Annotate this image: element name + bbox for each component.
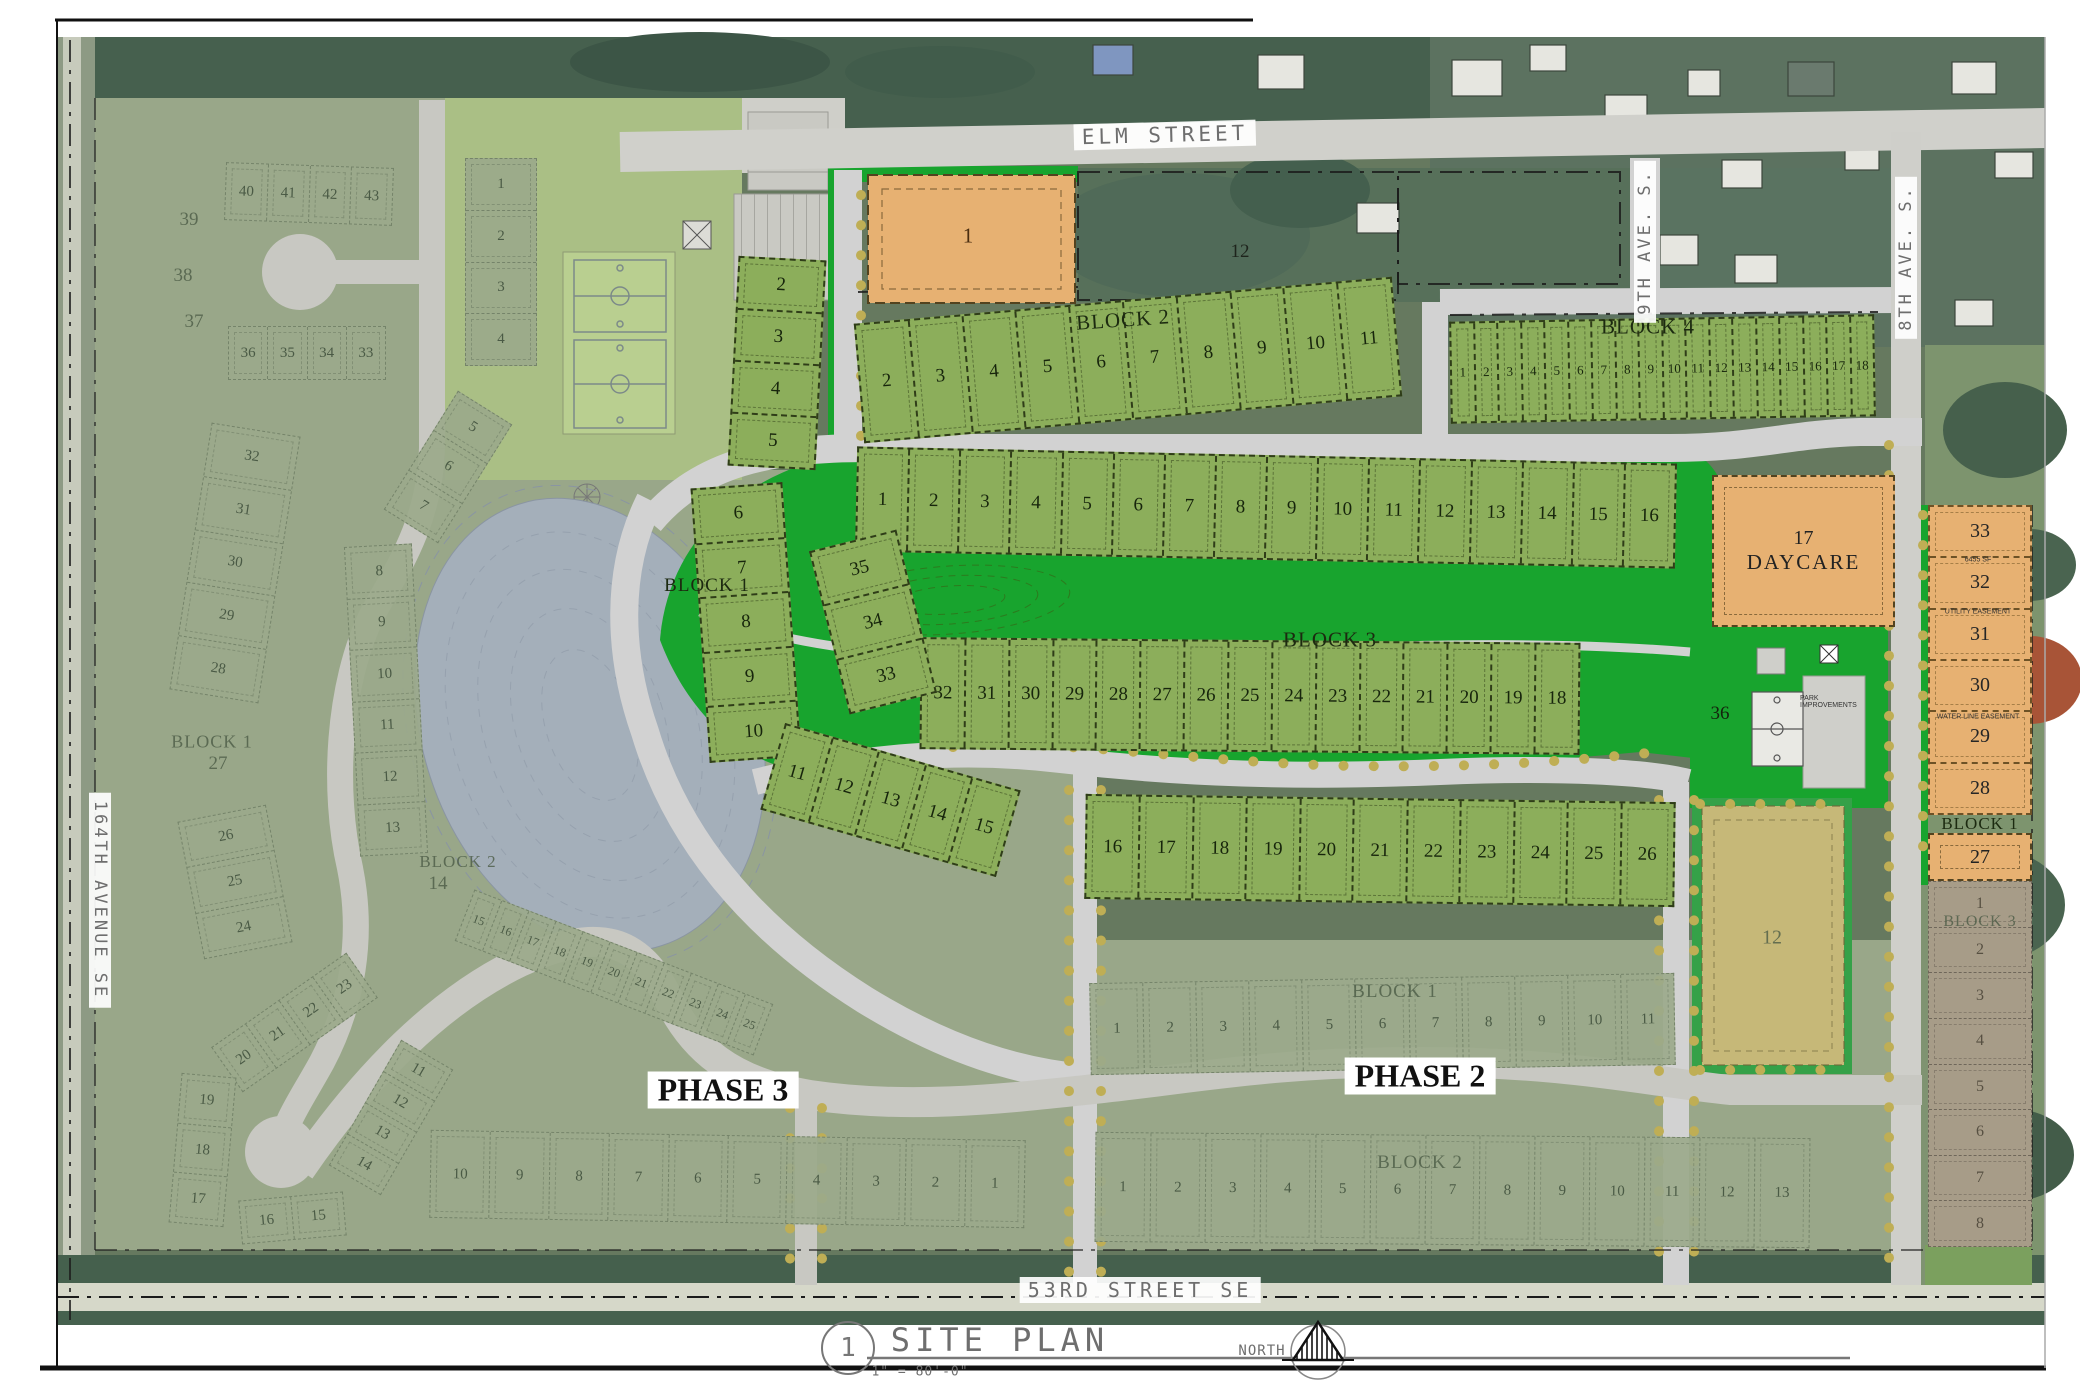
block3-mid-lot-row: 323130292827262524232221201918 bbox=[920, 637, 1581, 755]
lot: 4 bbox=[786, 1137, 847, 1224]
park-lot-36: 36 bbox=[1711, 703, 1730, 725]
block1-south-row: 1617181920212223242526 bbox=[1084, 794, 1675, 907]
phase2-label: PHASE 2 bbox=[1345, 1058, 1496, 1095]
phase3-lot37: 37 bbox=[185, 311, 204, 333]
lot: 9 bbox=[704, 646, 796, 707]
lot: 5 bbox=[1543, 322, 1568, 420]
lot: 2 bbox=[1929, 927, 2031, 973]
phase3-label: PHASE 3 bbox=[648, 1072, 799, 1109]
eighth-ave-label: 8TH AVE. S. bbox=[1895, 177, 1917, 339]
lot: 19 bbox=[1245, 798, 1300, 900]
lot: 23 bbox=[1314, 643, 1359, 751]
east-block1-lot-column: 333231302928 bbox=[1928, 505, 2032, 815]
lot: 1 bbox=[1096, 1133, 1151, 1241]
sheet-title: SITE PLAN bbox=[891, 1321, 1109, 1359]
lot: 12 bbox=[356, 749, 425, 804]
east-block1-lot-27: 27 bbox=[1928, 833, 2032, 881]
daycare-lot: 17 DAYCARE bbox=[1712, 475, 1895, 627]
plan-annotations: 234567891011 123456789101112131415161718… bbox=[0, 0, 2080, 1386]
lot: 41 bbox=[266, 165, 310, 222]
phase3-block2-arc-col: 567 bbox=[384, 391, 512, 544]
lot: 17 bbox=[170, 1172, 227, 1226]
lot: 11 bbox=[1366, 459, 1419, 561]
site-plan-sheet: 234567891011 123456789101112131415161718… bbox=[0, 0, 2080, 1386]
block1-arc-mid-lots: 678910 bbox=[691, 482, 802, 763]
east-block1-label: BLOCK 1 bbox=[1941, 814, 2018, 834]
lot: 14 bbox=[1520, 462, 1573, 564]
daycare-lot-number: 17 bbox=[1794, 527, 1814, 550]
lot: 9 bbox=[1514, 976, 1569, 1067]
53rd-street-label: 53RD STREET SE bbox=[1020, 1277, 1261, 1303]
lot: 9 bbox=[1264, 457, 1317, 559]
lot: 8 bbox=[1929, 1200, 2031, 1246]
lot: 8 bbox=[345, 544, 414, 598]
lot: 31 bbox=[963, 640, 1008, 748]
lot: 26 bbox=[1619, 803, 1674, 905]
lot: 13 bbox=[1754, 1139, 1810, 1247]
lot: 7 bbox=[1162, 455, 1215, 557]
lot: 2 bbox=[738, 258, 825, 312]
phase3-block2-lot14: 14 bbox=[429, 873, 448, 895]
lot: 25 bbox=[1227, 642, 1272, 750]
lot: 8 bbox=[548, 1133, 609, 1220]
park-improvements-label: PARK IMPROVEMENTS bbox=[1800, 695, 1860, 709]
lot: 11 bbox=[1644, 1138, 1700, 1246]
lot: 10 bbox=[1315, 458, 1368, 560]
lot: 3 bbox=[466, 262, 536, 314]
lot: 5 bbox=[726, 1136, 787, 1223]
lot: 29 bbox=[1051, 640, 1096, 748]
lot: 27 bbox=[1139, 641, 1184, 749]
lot: 19 bbox=[1490, 644, 1535, 752]
lot: 3 bbox=[957, 451, 1010, 553]
lot: 13 bbox=[358, 801, 427, 856]
commercial-lot-number: 1 bbox=[963, 224, 974, 249]
phase3-block1-ring2-col: 191817 bbox=[169, 1073, 237, 1227]
lot: 3 bbox=[1195, 981, 1250, 1072]
lot: 10 bbox=[1567, 975, 1622, 1066]
lot: 14 bbox=[1755, 318, 1780, 416]
phase3-lot38: 38 bbox=[174, 265, 193, 287]
lot: 30 bbox=[1930, 659, 2030, 710]
lot: 2 bbox=[1149, 1133, 1205, 1241]
daycare-label: DAYCARE bbox=[1747, 550, 1861, 575]
detail-number: 1 bbox=[840, 1333, 856, 1363]
lot: 3 bbox=[1204, 1134, 1260, 1242]
lot: 4 bbox=[1008, 452, 1061, 554]
lot: 9 bbox=[1229, 288, 1293, 408]
lot: 6 bbox=[667, 1135, 728, 1222]
lot: 7 bbox=[1929, 1155, 2031, 1201]
lot: 5 bbox=[1929, 1064, 2031, 1110]
lot: 19 bbox=[178, 1074, 235, 1127]
lot: 9 bbox=[489, 1132, 550, 1219]
lot: 4 bbox=[732, 360, 819, 416]
lot: 12 bbox=[1699, 1138, 1755, 1246]
lot: 15 bbox=[1778, 318, 1803, 416]
elm-street-label: ELM STREET bbox=[1073, 120, 1256, 151]
phase3-south-row: 10987654321 bbox=[429, 1130, 1025, 1228]
lot: 2 bbox=[904, 1139, 965, 1226]
lot: 9 bbox=[348, 595, 417, 650]
lot: 18 bbox=[1534, 644, 1579, 752]
north-label: NORTH bbox=[1238, 1343, 1285, 1359]
phase3-block1-west-col: 3231302928 bbox=[169, 423, 300, 704]
lot: 23 bbox=[1458, 801, 1513, 903]
lot: 16 bbox=[239, 1197, 293, 1243]
lot: 36 bbox=[229, 327, 267, 379]
lot: 33 bbox=[346, 327, 385, 379]
lot: 21 bbox=[1402, 643, 1447, 751]
phase3-block2-label: BLOCK 2 bbox=[419, 852, 496, 872]
lot: 2 bbox=[906, 449, 959, 551]
lot: 16 bbox=[1622, 464, 1675, 566]
lot: 8 bbox=[1479, 1136, 1535, 1244]
lot: 13 bbox=[1731, 318, 1756, 416]
phase2-block2-label: BLOCK 2 bbox=[1377, 1152, 1463, 1174]
ninth-ave-label: 9TH AVE. S. bbox=[1634, 161, 1656, 323]
water-easement-label: WATER LINE EASEMENT bbox=[1937, 714, 2019, 721]
lot: 13 bbox=[1468, 461, 1521, 563]
easement-label: 6455 SF bbox=[1965, 557, 1991, 564]
lot: 3 bbox=[1496, 322, 1521, 420]
lot: 16 bbox=[1802, 317, 1827, 415]
phase3-block1-ring-row: 20212223 bbox=[211, 953, 378, 1093]
east-block3-label: BLOCK 3 bbox=[1943, 913, 2016, 931]
lot: 18 bbox=[174, 1122, 231, 1176]
phase3-block1-cul-row: 40414243 bbox=[224, 162, 394, 226]
lot: 8 bbox=[1213, 456, 1266, 558]
lot: 4 bbox=[1259, 1134, 1315, 1242]
lot: 30 bbox=[1007, 640, 1052, 748]
lot: 6 bbox=[1929, 1109, 2031, 1155]
lot: 15 bbox=[290, 1193, 345, 1239]
phase2-block1-label: BLOCK 1 bbox=[1352, 981, 1438, 1003]
lot: 3 bbox=[735, 308, 822, 364]
lot: 12 bbox=[1708, 319, 1733, 417]
164th-avenue-label: 164TH AVENUE SE bbox=[89, 793, 111, 1008]
lot: 15 bbox=[1571, 463, 1624, 565]
block1-arc-top-lots: 2345 bbox=[728, 256, 827, 470]
lot: 12 bbox=[1417, 460, 1470, 562]
lot: 1 bbox=[1451, 323, 1474, 421]
block3-top-lot-row: 12345678910111213141516 bbox=[855, 446, 1677, 568]
phase2-block2-lot-row: 12345678910111213 bbox=[1095, 1132, 1811, 1248]
sheet-scale: 1" = 80'-0" bbox=[871, 1365, 968, 1380]
lot: 18 bbox=[1849, 316, 1874, 414]
lot: 16 bbox=[1086, 796, 1139, 898]
lot: 4 bbox=[1249, 980, 1304, 1071]
lot: 2 bbox=[1142, 982, 1197, 1073]
lot: 25 bbox=[1565, 803, 1620, 905]
lot: 6 bbox=[693, 484, 784, 543]
phase3-block2-se-row: 1516171819202122232425 bbox=[455, 889, 773, 1055]
lot: 1 bbox=[466, 159, 536, 210]
lot: 17 bbox=[1138, 797, 1193, 899]
utility-easement-label: UTILITY EASEMENT bbox=[1945, 609, 2011, 616]
lot: 8 bbox=[1176, 293, 1240, 413]
lot: 26 bbox=[1183, 641, 1228, 749]
phase2-lot12-number: 12 bbox=[1762, 927, 1782, 950]
lot: 34 bbox=[307, 327, 346, 379]
phase3-block1-label: BLOCK 1 bbox=[171, 732, 253, 753]
lot: 8 bbox=[700, 591, 792, 652]
lot: 20 bbox=[1446, 644, 1491, 752]
lot: 33 bbox=[1930, 507, 2030, 556]
lot: 42 bbox=[308, 166, 352, 223]
lot: 3 bbox=[1929, 972, 2031, 1018]
aerial-parcel-12: 12 bbox=[1231, 241, 1250, 263]
lot: 5 bbox=[1314, 1135, 1370, 1243]
lot: 28 bbox=[1930, 762, 2030, 813]
lot: 11 bbox=[1336, 279, 1400, 399]
lot: 3 bbox=[908, 316, 972, 436]
block1-label: BLOCK 1 bbox=[664, 575, 750, 597]
lot: 10 bbox=[350, 646, 419, 701]
lot: 24 bbox=[1270, 642, 1315, 750]
phase3-block1-ring3-row: 1615 bbox=[238, 1192, 346, 1245]
lot: 1 bbox=[1090, 983, 1144, 1074]
lot: 32 bbox=[1930, 556, 2030, 607]
block2-lot-row: 234567891011 bbox=[854, 277, 1402, 444]
lot: 24 bbox=[1512, 802, 1567, 904]
lot: 1 bbox=[964, 1140, 1025, 1227]
lot: 5 bbox=[1059, 453, 1112, 555]
lot: 4 bbox=[1520, 322, 1545, 420]
lot: 10 bbox=[1589, 1137, 1645, 1245]
lot: 6 bbox=[1567, 321, 1592, 419]
lot: 2 bbox=[466, 210, 536, 262]
lot: 6 bbox=[1111, 454, 1164, 556]
lot: 40 bbox=[225, 163, 268, 220]
phase3-block2-west-col: 8910111213 bbox=[344, 543, 428, 856]
lot: 18 bbox=[1191, 797, 1246, 899]
lot: 2 bbox=[1473, 323, 1498, 421]
lot: 35 bbox=[267, 327, 306, 379]
block3-label: BLOCK 3 bbox=[1283, 628, 1377, 653]
east-block3-lot-column: 12345678 bbox=[1928, 881, 2032, 1247]
lot: 10 bbox=[430, 1131, 490, 1218]
lot: 10 bbox=[1283, 284, 1347, 404]
lot: 8 bbox=[1461, 977, 1516, 1068]
lot: 17 bbox=[1825, 317, 1850, 415]
block3-west-arc-lots: 353433 bbox=[809, 530, 937, 715]
lot: 11 bbox=[1620, 974, 1675, 1065]
phase3-lot39: 39 bbox=[180, 209, 199, 231]
lot: 5 bbox=[1015, 307, 1079, 427]
phase3-block1-south-col: 262524 bbox=[177, 805, 292, 960]
lot: 43 bbox=[349, 167, 393, 224]
lot: 9 bbox=[1534, 1137, 1590, 1245]
lot: 4 bbox=[961, 312, 1025, 432]
lot: 22 bbox=[1358, 643, 1403, 751]
lot: 20 bbox=[1298, 799, 1353, 901]
lot: 3 bbox=[845, 1138, 906, 1225]
lot: 21 bbox=[1352, 800, 1407, 902]
phase3-block1-lot27: 27 bbox=[209, 753, 228, 775]
lot: 5 bbox=[730, 412, 817, 468]
lot: 7 bbox=[607, 1134, 668, 1221]
phase3-block1-row2: 36353433 bbox=[228, 326, 386, 380]
lot: 4 bbox=[1929, 1018, 2031, 1064]
lot: 22 bbox=[1405, 800, 1460, 902]
lot: 4 bbox=[466, 313, 536, 365]
lot: 28 bbox=[1095, 641, 1140, 749]
lot: 11 bbox=[353, 698, 422, 753]
phase3-block2-north-col: 1234 bbox=[465, 158, 537, 366]
